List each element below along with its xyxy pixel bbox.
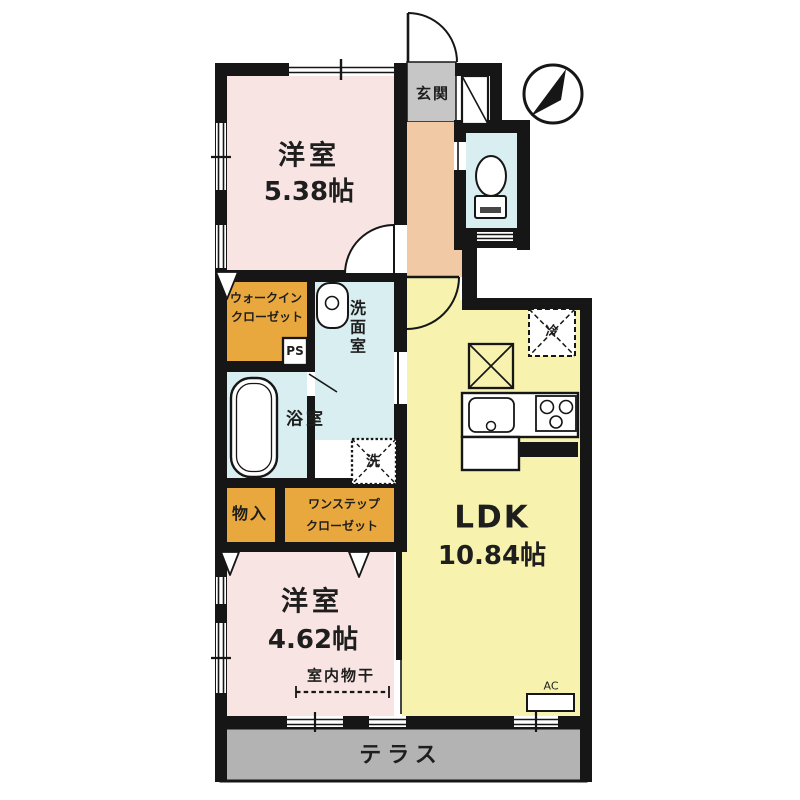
terrace-label: テラス (359, 745, 443, 767)
bedroom1-name-label: 洋室 (278, 143, 340, 170)
entrance-door (408, 13, 457, 62)
bedroom2-area-label: 4.62帖 (268, 627, 358, 653)
ac-unit-box (527, 694, 574, 711)
one-step-closet-label-line1: ワンステップ (308, 498, 380, 510)
washroom-label: 洗面室 (348, 300, 364, 357)
washing-machine-label: 洗 (366, 455, 380, 469)
ldk-area-label: 10.84帖 (438, 543, 546, 569)
indoor-drying-label: 室内物干 (307, 669, 375, 684)
one-step-closet-label-line2: クローゼット (306, 520, 378, 532)
bathroom-label: 浴室 (286, 412, 326, 429)
compass-icon (524, 65, 582, 123)
ac-label: AC (543, 681, 558, 692)
walk-in-closet-label-line2: クローゼット (231, 311, 303, 323)
toilet-door-opening (454, 142, 466, 170)
floor-plan-drawing (0, 0, 800, 800)
bedroom1-area-label: 5.38帖 (264, 179, 354, 205)
hallway-floor (407, 122, 462, 277)
storage-label: 物入 (232, 506, 268, 522)
bedroom1-door-opening (394, 225, 407, 273)
bedroom2-name-label: 洋室 (281, 589, 343, 616)
shoe-cabinet (462, 76, 488, 124)
entrance-label: 玄関 (416, 87, 450, 102)
ldk-name-label: LDK (454, 503, 530, 534)
pipe-space-label: PS (286, 345, 303, 357)
walk-in-closet-label-line1: ウォークイン (230, 292, 302, 304)
washroom-door-opening (394, 352, 407, 404)
refrigerator-label: 冷 (545, 326, 558, 339)
toilet-icon (475, 156, 506, 218)
wash-basin-icon (317, 283, 348, 328)
floor-plan-page: 玄関 洋室 5.38帖 ウォークイン クローゼット PS 洗面室 浴室 洗 冷 … (0, 0, 800, 800)
bathtub-icon (231, 378, 277, 477)
